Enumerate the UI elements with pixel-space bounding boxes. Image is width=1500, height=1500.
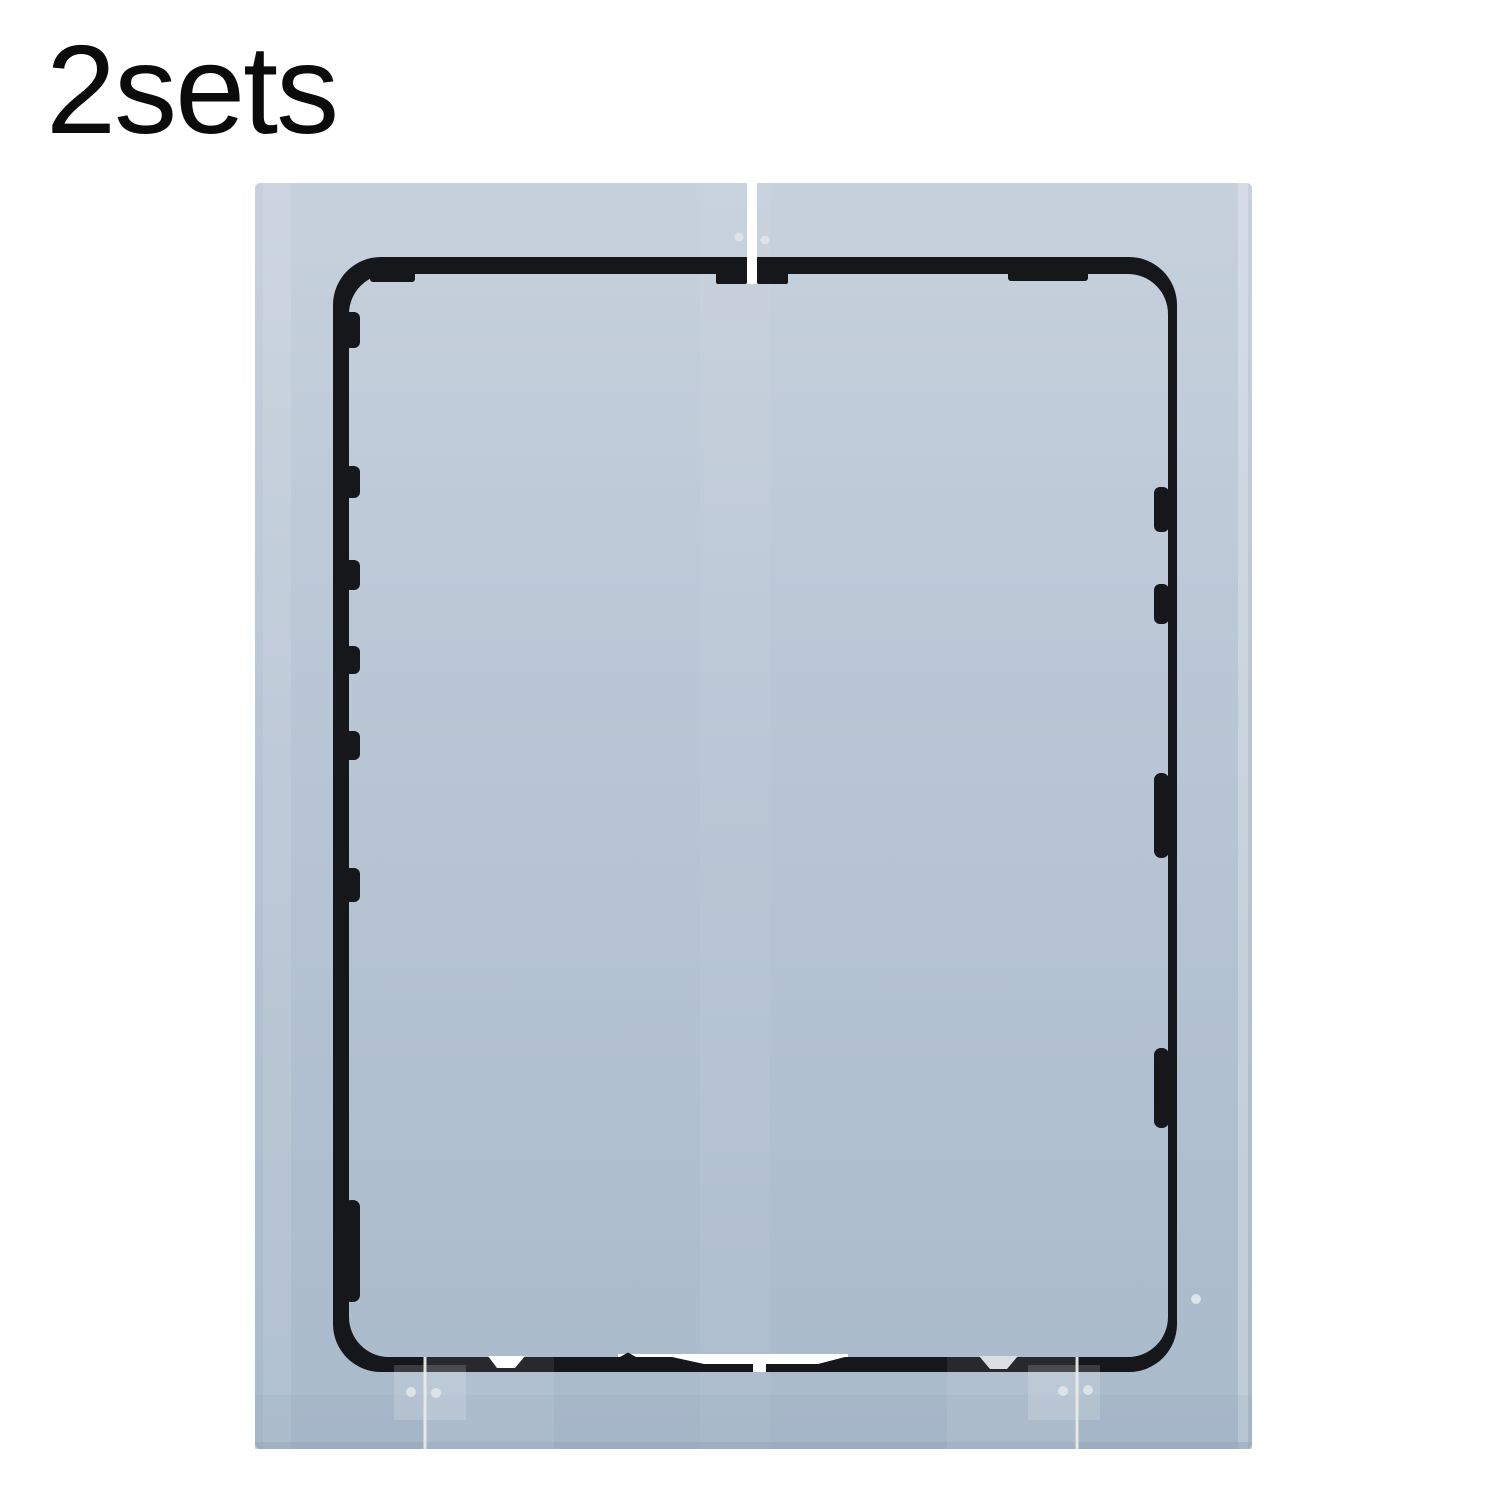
product-photo: 2sets — [0, 0, 1500, 1500]
registration-dot — [431, 1388, 441, 1398]
adhesive-notch — [344, 868, 360, 902]
registration-dot — [1191, 1294, 1201, 1304]
adhesive-tab — [757, 257, 788, 284]
adhesive-notch — [1154, 773, 1169, 858]
adhesive-notch — [1154, 584, 1169, 624]
adhesive-notch — [1154, 487, 1169, 532]
adhesive-tab — [370, 268, 415, 282]
registration-dot — [1083, 1385, 1093, 1395]
sheet-split-gap-top — [747, 178, 757, 284]
adhesive-notch — [344, 466, 360, 498]
registration-dot — [735, 233, 744, 242]
quantity-label: 2sets — [46, 19, 337, 160]
registration-dot — [1058, 1386, 1068, 1396]
adhesive-notch — [1154, 1048, 1169, 1128]
sheet-seam-line — [424, 1357, 427, 1449]
adhesive-notch — [344, 312, 360, 348]
sheet-seam-line — [1076, 1357, 1079, 1449]
adhesive-sticker-illustration: 2sets — [0, 0, 1500, 1500]
adhesive-tab — [1008, 268, 1088, 281]
adhesive-notch — [344, 560, 360, 590]
adhesive-notch — [344, 1200, 360, 1302]
registration-dot — [406, 1387, 416, 1397]
adhesive-tab — [716, 257, 747, 284]
adhesive-notch — [344, 646, 360, 674]
adhesive-notch — [344, 731, 360, 760]
registration-dot — [761, 236, 770, 245]
